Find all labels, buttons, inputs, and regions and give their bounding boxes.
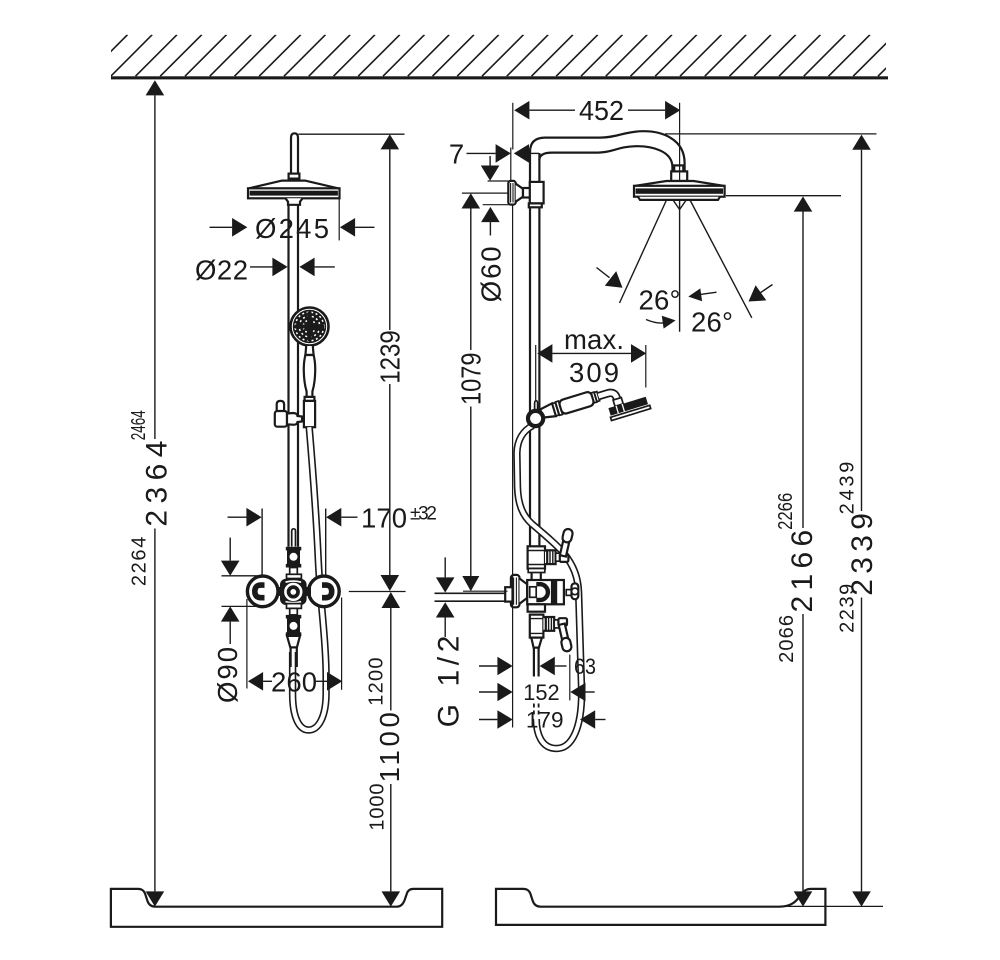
svg-text:Ø22: Ø22 (195, 255, 248, 286)
svg-text:26°: 26° (639, 285, 681, 316)
svg-text:G 1/2: G 1/2 (433, 636, 466, 728)
svg-text:±32: ±32 (410, 504, 437, 525)
svg-text:309: 309 (569, 357, 619, 388)
svg-text:260: 260 (271, 666, 317, 697)
svg-text:1239: 1239 (374, 330, 405, 384)
svg-text:2464: 2464 (128, 410, 150, 440)
svg-text:2264: 2264 (129, 537, 151, 587)
svg-text:Ø245: Ø245 (255, 213, 329, 244)
svg-text:152: 152 (523, 680, 559, 705)
svg-text:452: 452 (579, 95, 624, 126)
svg-text:1200: 1200 (365, 658, 387, 706)
svg-text:1100: 1100 (374, 712, 405, 782)
svg-text:2239: 2239 (836, 584, 858, 633)
svg-text:Ø60: Ø60 (475, 246, 506, 302)
svg-text:26°: 26° (691, 307, 733, 338)
svg-text:max.: max. (564, 324, 624, 355)
svg-text:2266: 2266 (775, 493, 797, 530)
svg-text:1000: 1000 (367, 783, 389, 830)
svg-text:179: 179 (526, 707, 564, 732)
svg-text:170: 170 (361, 502, 407, 533)
svg-text:7: 7 (449, 138, 464, 169)
svg-text:2066: 2066 (776, 615, 798, 663)
svg-text:Ø90: Ø90 (212, 647, 243, 703)
svg-text:63: 63 (574, 654, 596, 679)
svg-text:1079: 1079 (456, 352, 487, 405)
